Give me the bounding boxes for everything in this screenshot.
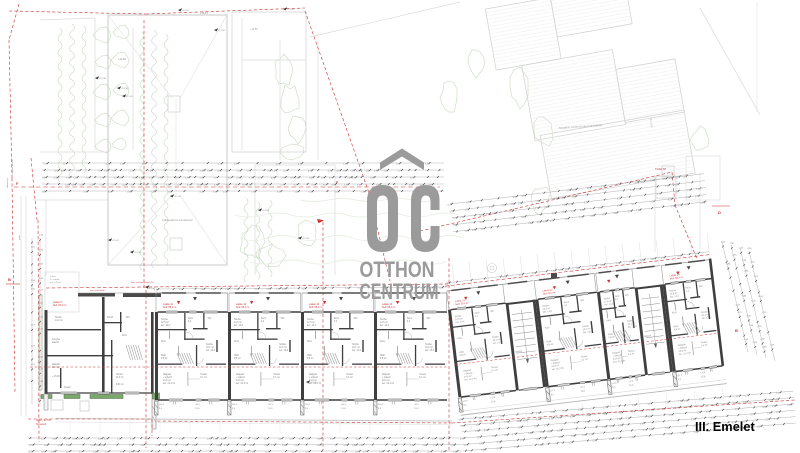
svg-text:Nett: 58,4 m²: Nett: 58,4 m² <box>236 306 250 309</box>
svg-text:Közl.: Közl. <box>122 335 127 337</box>
svg-text:12,5 m²: 12,5 m² <box>161 321 169 324</box>
svg-text:+12,41: +12,41 <box>112 240 120 242</box>
svg-text:Lakás 12: Lakás 12 <box>236 303 247 306</box>
svg-text:+12,55: +12,55 <box>182 10 190 12</box>
svg-text:WC: WC <box>208 318 212 320</box>
svg-text:12,5 m²: 12,5 m² <box>307 321 315 324</box>
svg-text:+12,55: +12,55 <box>174 196 182 198</box>
svg-text:meglévő kerítés: meglévő kerítés <box>11 159 14 175</box>
svg-text:Nappali: Nappali <box>163 374 171 376</box>
svg-text:+12,38: +12,38 <box>99 78 107 80</box>
svg-text:+ étkező: + étkező <box>382 376 391 379</box>
svg-text:Szoba: Szoba <box>234 319 241 321</box>
svg-text:12,5 m²: 12,5 m² <box>234 321 242 324</box>
svg-text:LH 4: LH 4 <box>378 404 383 406</box>
svg-text:Szoba: Szoba <box>55 317 62 319</box>
svg-text:útburkolat: útburkolat <box>6 178 9 188</box>
svg-text:Szoba: Szoba <box>352 344 359 346</box>
svg-text:6,1 m²: 6,1 m² <box>419 376 426 379</box>
svg-text:Szoba: Szoba <box>161 319 168 321</box>
svg-text:24,6 m²: 24,6 m² <box>163 379 171 382</box>
svg-text:24,6 m²: 24,6 m² <box>236 379 244 382</box>
svg-text:Nett: 58,4 m²: Nett: 58,4 m² <box>309 306 323 309</box>
svg-text:9,8 m²: 9,8 m² <box>161 357 168 360</box>
svg-text:+12,41: +12,41 <box>126 96 134 98</box>
svg-text:ker: 21,2 fm: ker: 21,2 fm <box>163 382 175 385</box>
svg-text:Nappali: Nappali <box>309 374 317 376</box>
svg-text:LH 5: LH 5 <box>268 404 273 406</box>
svg-text:F: F <box>16 182 18 186</box>
svg-text:terv. acél korlát m=1,10: terv. acél korlát m=1,10 <box>131 281 154 284</box>
svg-text:LH 5: LH 5 <box>414 404 419 406</box>
svg-text:ker: 21,2 fm: ker: 21,2 fm <box>382 382 394 385</box>
svg-text:Háló: Háló <box>234 355 239 357</box>
svg-text:11,9 m²: 11,9 m² <box>116 376 124 379</box>
svg-text:14,2 m²: 14,2 m² <box>55 319 63 322</box>
svg-text:ker: 14,6: ker: 14,6 <box>161 324 171 327</box>
svg-text:24,6 m²: 24,6 m² <box>309 379 317 382</box>
svg-text:10,1 m²: 10,1 m² <box>279 346 287 349</box>
svg-text:Háló: Háló <box>161 355 166 357</box>
svg-text:22,4 m²: 22,4 m² <box>52 366 60 369</box>
svg-text:+12,38: +12,38 <box>302 238 310 240</box>
svg-text:9,81 m²: 9,81 m² <box>116 383 124 386</box>
svg-text:Tervezett: Tervezett <box>36 423 46 426</box>
svg-text:+12,55: +12,55 <box>218 30 226 32</box>
svg-text:Nappali: Nappali <box>382 374 390 376</box>
svg-text:+12,38: +12,38 <box>287 9 295 11</box>
svg-text:Lakás: Lakás <box>50 276 57 278</box>
svg-text:Férd.: Férd. <box>261 317 267 320</box>
svg-text:+ étkező: + étkező <box>236 376 245 379</box>
svg-text:+12,44: +12,44 <box>200 12 208 15</box>
svg-text:járda: járda <box>18 234 21 241</box>
svg-text:+12,38: +12,38 <box>121 88 129 90</box>
svg-text:ker: 13,0: ker: 13,0 <box>206 349 216 352</box>
svg-text:TGFH 66: TGFH 66 <box>655 167 667 171</box>
svg-text:WC: WC <box>354 318 358 320</box>
svg-text:Férd.: Férd. <box>188 317 194 320</box>
svg-text:24,6 m²: 24,6 m² <box>382 379 390 382</box>
svg-text:P: szárító: P: szárító <box>50 278 60 281</box>
svg-text:Terasz: Terasz <box>200 373 208 376</box>
svg-text:ker: 14,6: ker: 14,6 <box>380 324 390 327</box>
svg-text:Lakás 13: Lakás 13 <box>309 303 320 306</box>
svg-text:12,5 m²: 12,5 m² <box>380 321 388 324</box>
svg-text:Fáklyatartós közlekedő: Fáklyatartós közlekedő <box>162 218 193 222</box>
svg-text:+12,48: +12,48 <box>118 58 126 61</box>
svg-text:+12,55: +12,55 <box>262 210 270 212</box>
svg-text:Szoba: Szoba <box>116 374 123 376</box>
svg-text:ker: 14,6: ker: 14,6 <box>307 324 317 327</box>
svg-text:10,1 m²: 10,1 m² <box>206 346 214 349</box>
svg-text:WC: WC <box>126 317 130 319</box>
svg-text:Lakás 8: Lakás 8 <box>53 301 62 304</box>
svg-text:WC: WC <box>427 318 431 320</box>
svg-text:10,1 m²: 10,1 m² <box>425 346 433 349</box>
svg-text:III. Emelet: III. Emelet <box>695 419 755 434</box>
svg-text:Férd.: Férd. <box>334 317 340 320</box>
svg-text:10,1 m²: 10,1 m² <box>352 346 360 349</box>
svg-text:Konyha: Konyha <box>52 339 61 341</box>
svg-text:+ 15,00: + 15,00 <box>52 376 60 378</box>
svg-text:6,1 m²: 6,1 m² <box>346 376 353 379</box>
svg-text:LH 4: LH 4 <box>305 404 310 406</box>
svg-text:WC: WC <box>281 318 285 320</box>
svg-text:CENTRUM: CENTRUM <box>360 279 439 304</box>
svg-text:+12,50: +12,50 <box>250 28 258 31</box>
svg-text:+ étkező: + étkező <box>163 376 172 379</box>
svg-text:ker: 13,0: ker: 13,0 <box>352 349 362 352</box>
svg-text:Közl.: Közl. <box>234 341 239 343</box>
svg-text:Nappali: Nappali <box>52 364 60 366</box>
svg-text:ker: 21,2 fm: ker: 21,2 fm <box>236 382 248 385</box>
svg-text:terv. acél korlát: terv. acél korlát <box>90 289 105 292</box>
svg-text:Közl.: Közl. <box>380 341 385 343</box>
svg-text:Férdő: Férdő <box>107 316 114 319</box>
svg-text:Háló: Háló <box>380 355 385 357</box>
svg-text:Szoba: Szoba <box>380 319 387 321</box>
svg-text:D: D <box>718 210 721 215</box>
svg-text:6,1 m²: 6,1 m² <box>200 376 207 379</box>
svg-text:9,8 m²: 9,8 m² <box>380 357 387 360</box>
svg-text:Nett: 58,4 m²: Nett: 58,4 m² <box>163 306 177 309</box>
svg-text:6,1 m²: 6,1 m² <box>273 376 280 379</box>
svg-text:Nappali: Nappali <box>236 374 244 376</box>
svg-text:Terasz: Terasz <box>346 373 354 376</box>
svg-text:Férd.: Férd. <box>407 317 413 320</box>
svg-text:LH 5: LH 5 <box>195 404 200 406</box>
svg-text:LH 5: LH 5 <box>341 404 346 406</box>
svg-text:9,8 m²: 9,8 m² <box>307 357 314 360</box>
svg-text:B: B <box>8 277 11 282</box>
svg-text:9,8 m²: 9,8 m² <box>234 357 241 360</box>
svg-text:Szoba: Szoba <box>307 319 314 321</box>
svg-text:Közl.: Közl. <box>161 341 166 343</box>
svg-text:LH 4: LH 4 <box>159 404 164 406</box>
svg-text:Nett: 58,4 m²: Nett: 58,4 m² <box>382 306 396 309</box>
svg-text:Háló: Háló <box>307 355 312 357</box>
svg-text:LH 4: LH 4 <box>232 404 237 406</box>
svg-text:+ étkező: + étkező <box>309 376 318 379</box>
svg-text:Terasz: Terasz <box>419 373 427 376</box>
svg-text:étkező: étkező <box>52 341 59 344</box>
svg-text:ker: 14,6: ker: 14,6 <box>234 324 244 327</box>
svg-text:Hrsz: 977/8: Hrsz: 977/8 <box>36 418 51 422</box>
svg-text:B: B <box>735 328 738 333</box>
svg-text:ker: 13,0: ker: 13,0 <box>279 349 289 352</box>
svg-text:Közl.: Közl. <box>307 341 312 343</box>
svg-text:F: F <box>336 181 338 185</box>
svg-text:+12,38: +12,38 <box>134 252 142 254</box>
svg-text:Terasz: Terasz <box>64 386 72 389</box>
svg-text:ker: 21,2 fm: ker: 21,2 fm <box>309 382 321 385</box>
svg-text:ker: 13,0: ker: 13,0 <box>425 349 435 352</box>
svg-text:Lakás 11: Lakás 11 <box>163 303 174 306</box>
svg-text:mf: 3,15 m²: mf: 3,15 m² <box>50 281 61 284</box>
svg-text:Terasz: Terasz <box>273 373 281 376</box>
svg-text:Szoba: Szoba <box>279 344 286 346</box>
svg-text:Szoba: Szoba <box>425 344 432 346</box>
svg-text:Szoba: Szoba <box>206 344 213 346</box>
svg-text:Nett: 84,2 m²: Nett: 84,2 m² <box>53 304 67 307</box>
